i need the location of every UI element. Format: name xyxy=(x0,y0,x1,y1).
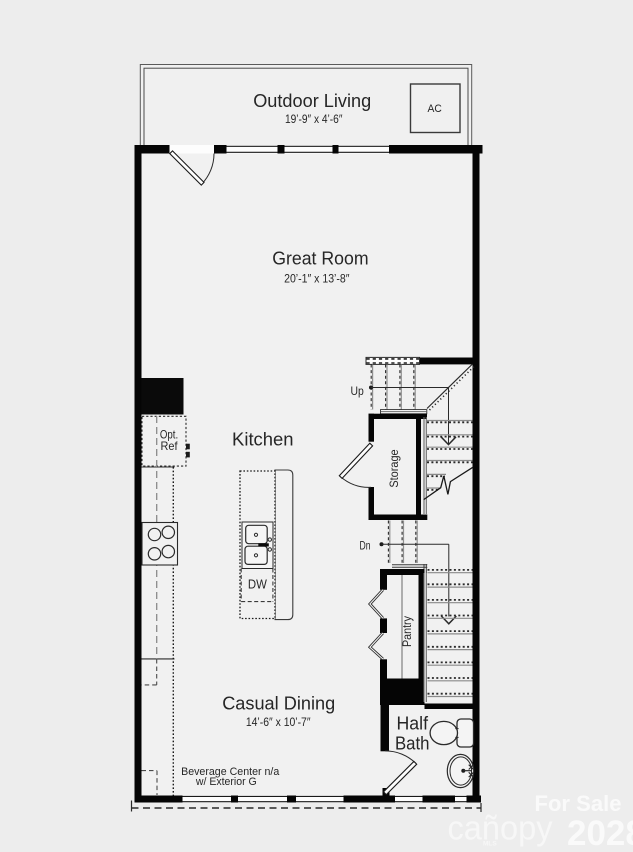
svg-text:Pantry: Pantry xyxy=(402,616,414,647)
svg-text:2028: 2028 xyxy=(567,814,633,852)
svg-text:Great Room: Great Room xyxy=(272,248,368,269)
svg-text:Ref: Ref xyxy=(161,439,179,453)
svg-text:Storage: Storage xyxy=(389,449,401,487)
svg-text:Dn: Dn xyxy=(360,541,371,553)
svg-text:Kitchen: Kitchen xyxy=(232,429,294,450)
svg-text:14’-6″ x 10’-7″: 14’-6″ x 10’-7″ xyxy=(246,715,311,729)
svg-text:Bath: Bath xyxy=(395,732,430,753)
svg-text:DW: DW xyxy=(248,577,268,592)
svg-text:MLS: MLS xyxy=(483,841,497,848)
svg-text:20’-1″ x 13’-8″: 20’-1″ x 13’-8″ xyxy=(284,272,350,286)
svg-text:Up: Up xyxy=(351,386,364,398)
svg-text:Casual Dining: Casual Dining xyxy=(222,693,335,714)
svg-text:19’-9″ x 4’-6″: 19’-9″ x 4’-6″ xyxy=(285,112,343,126)
svg-text:cañopy: cañopy xyxy=(448,810,553,848)
svg-text:w/ Exterior G: w/ Exterior G xyxy=(195,776,257,788)
svg-text:Outdoor Living: Outdoor Living xyxy=(253,90,371,111)
svg-text:Half: Half xyxy=(397,712,429,733)
svg-text:AC: AC xyxy=(428,103,442,115)
